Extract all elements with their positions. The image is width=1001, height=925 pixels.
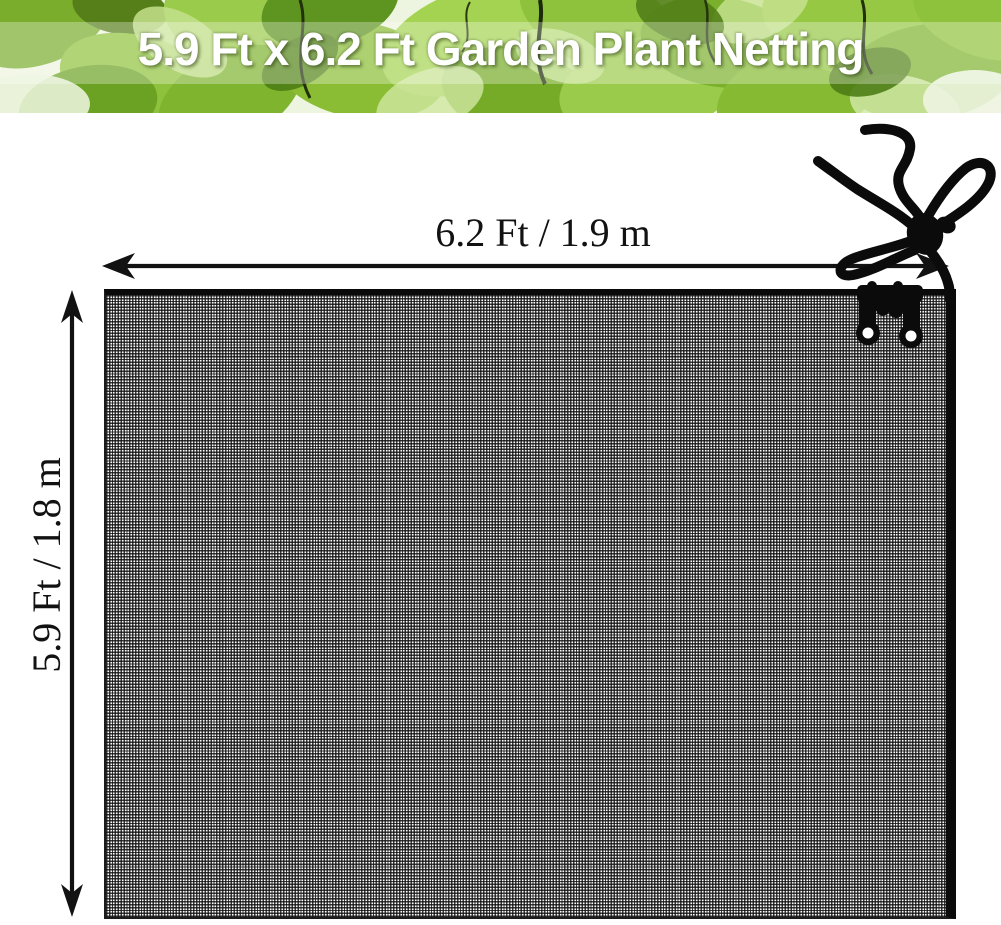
height-arrow-icon: [52, 284, 94, 924]
title-banner: 5.9 Ft x 6.2 Ft Garden Plant Netting: [0, 0, 1001, 113]
product-image: 5.9 Ft x 6.2 Ft Garden Plant Netting 6.2…: [0, 0, 1001, 925]
width-dimension-label: 6.2 Ft / 1.9 m: [435, 213, 651, 253]
net-clip-icon: [845, 272, 937, 357]
banner-title: 5.9 Ft x 6.2 Ft Garden Plant Netting: [0, 22, 1001, 76]
net-mesh: [104, 289, 956, 919]
